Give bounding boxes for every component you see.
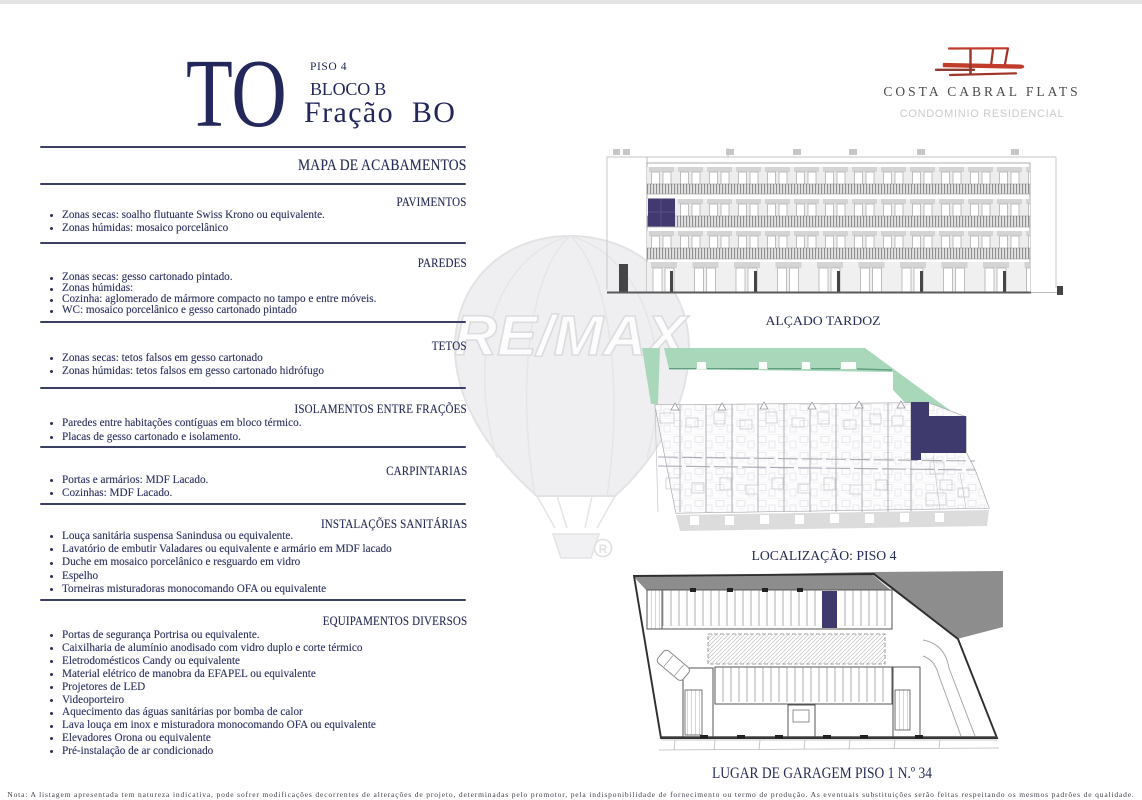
svg-text:LUGAR DE GARAGEM PISO 1 N.º 3: LUGAR DE GARAGEM PISO 1 N.º 34 (712, 765, 932, 782)
svg-text:R: R (599, 542, 608, 556)
svg-text:ALÇADO TARDOZ: ALÇADO TARDOZ (766, 313, 881, 328)
